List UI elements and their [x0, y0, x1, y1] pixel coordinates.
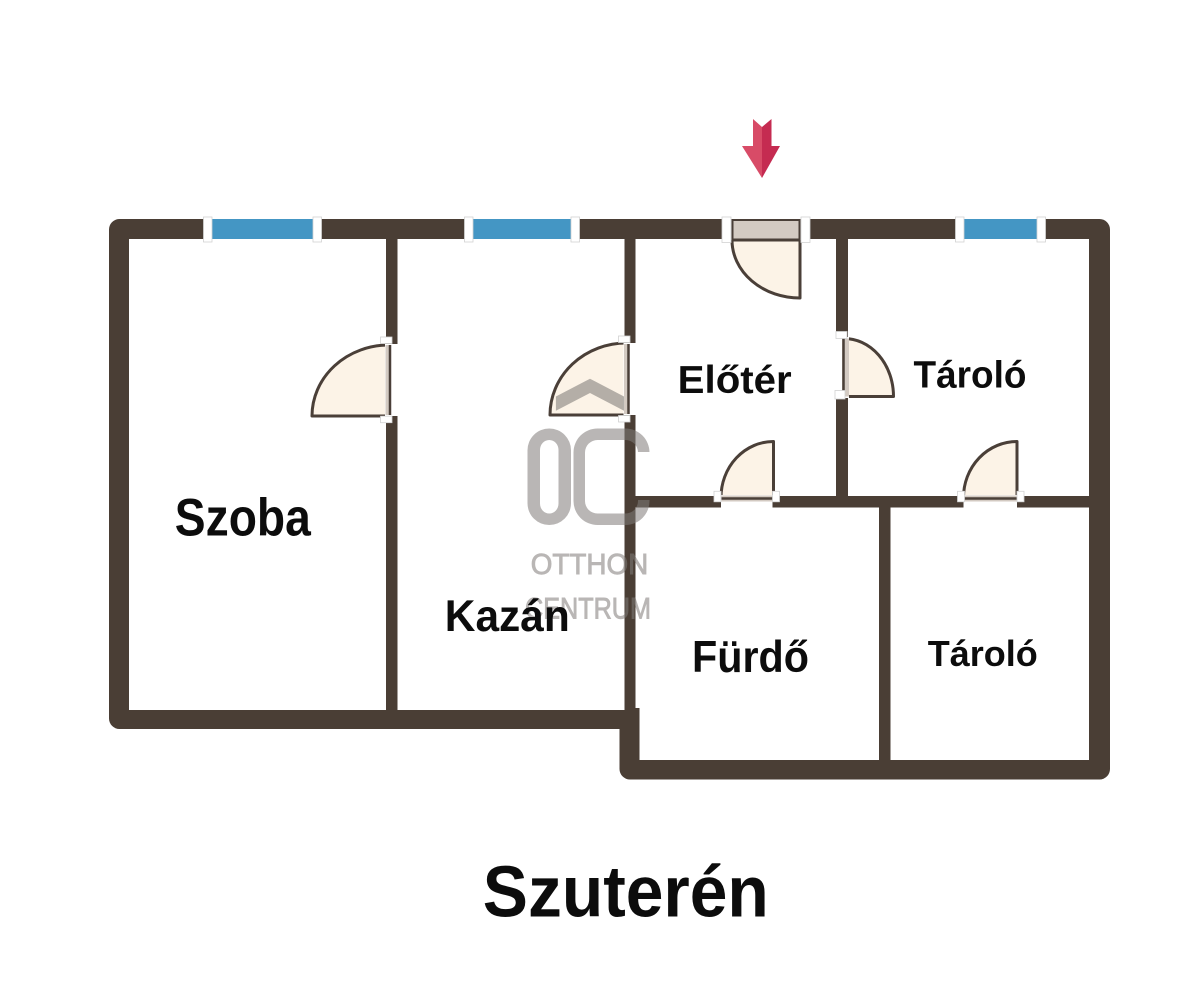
svg-text:Szuterén: Szuterén: [483, 853, 769, 933]
svg-text:Előtér: Előtér: [678, 359, 792, 402]
svg-text:Fürdő: Fürdő: [692, 633, 809, 682]
svg-text:Kazán: Kazán: [445, 592, 570, 641]
svg-text:Szoba: Szoba: [175, 490, 312, 548]
svg-text:OTTHON: OTTHON: [531, 549, 649, 581]
svg-text:Tároló: Tároló: [928, 634, 1038, 674]
svg-text:Tároló: Tároló: [914, 354, 1027, 397]
